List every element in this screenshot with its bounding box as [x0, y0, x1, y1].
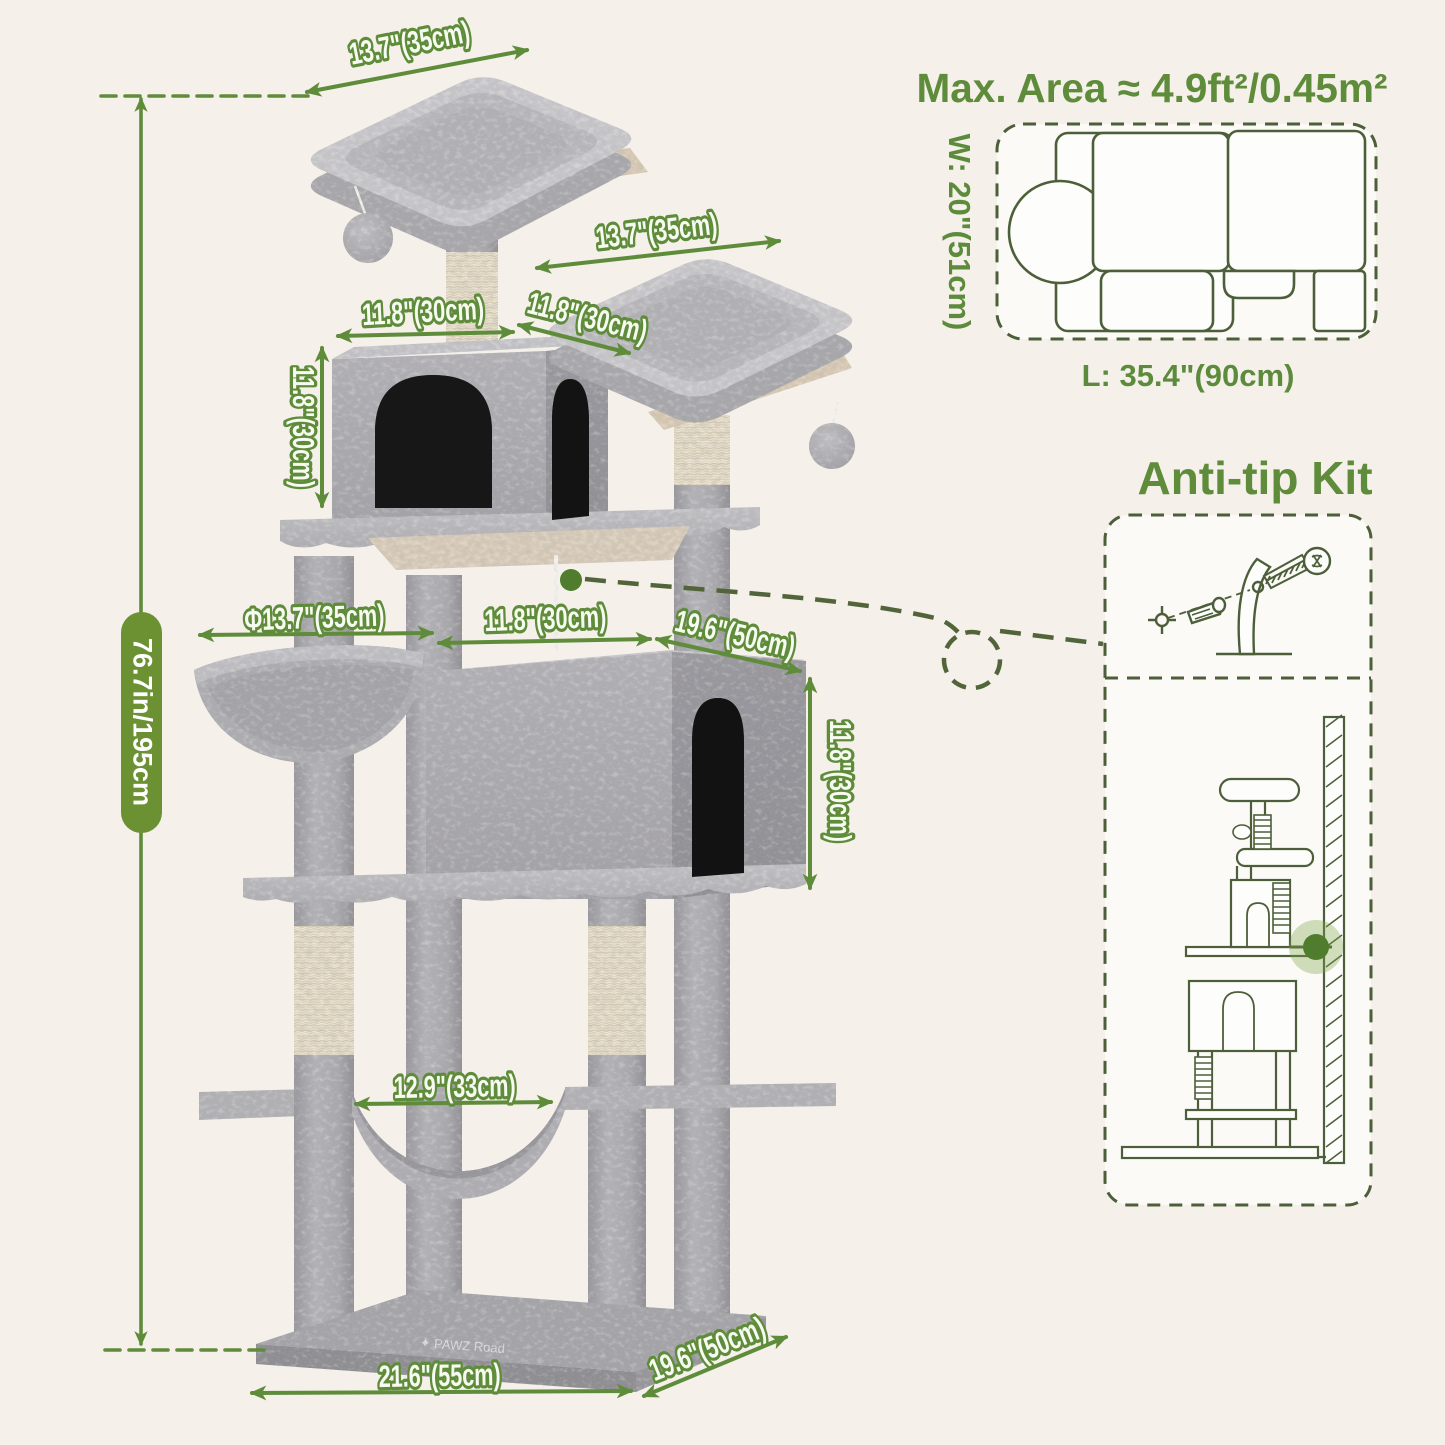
- svg-text:Max. Area ≈ 4.9ft²/0.45m²: Max. Area ≈ 4.9ft²/0.45m²: [917, 65, 1388, 111]
- svg-text:76.7in/195cm: 76.7in/195cm: [128, 638, 158, 806]
- svg-text:11.8"(30cm): 11.8"(30cm): [484, 599, 607, 638]
- svg-text:11.8"(30cm): 11.8"(30cm): [286, 366, 321, 488]
- svg-text:11.8"(30cm): 11.8"(30cm): [361, 291, 485, 332]
- svg-text:12.9"(33cm): 12.9"(33cm): [393, 1068, 516, 1105]
- svg-text:Anti-tip Kit: Anti-tip Kit: [1137, 452, 1372, 504]
- svg-text:21.6"(55cm): 21.6"(55cm): [378, 1357, 501, 1394]
- svg-text:L: 35.4"(90cm): L: 35.4"(90cm): [1082, 358, 1295, 393]
- svg-text:11.8"(30cm): 11.8"(30cm): [823, 720, 858, 842]
- svg-text:W: 20"(51cm): W: 20"(51cm): [942, 134, 977, 331]
- svg-text:Φ13.7"(35cm): Φ13.7"(35cm): [244, 598, 385, 638]
